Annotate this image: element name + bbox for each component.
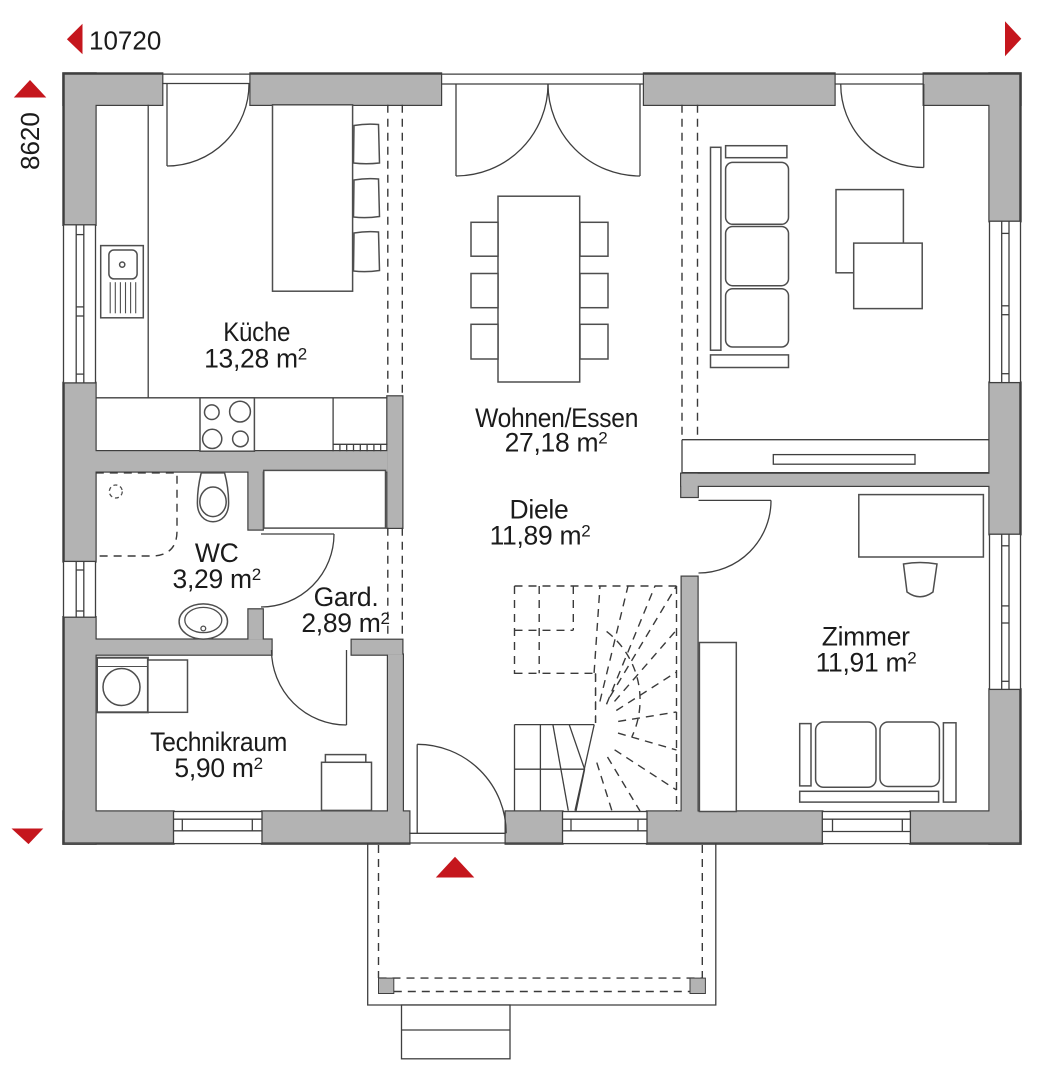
svg-text:5,90 m2: 5,90 m2 (174, 753, 262, 783)
svg-text:13,28 m2: 13,28 m2 (204, 344, 307, 374)
svg-text:11,91 m2: 11,91 m2 (816, 648, 917, 678)
svg-text:11,89 m2: 11,89 m2 (490, 521, 591, 551)
svg-text:2,89 m2: 2,89 m2 (301, 608, 389, 638)
svg-text:8620: 8620 (15, 112, 45, 170)
svg-text:Küche: Küche (223, 317, 290, 347)
svg-text:27,18 m2: 27,18 m2 (505, 427, 608, 457)
svg-text:10720: 10720 (89, 26, 161, 56)
svg-text:3,29 m2: 3,29 m2 (173, 564, 261, 594)
